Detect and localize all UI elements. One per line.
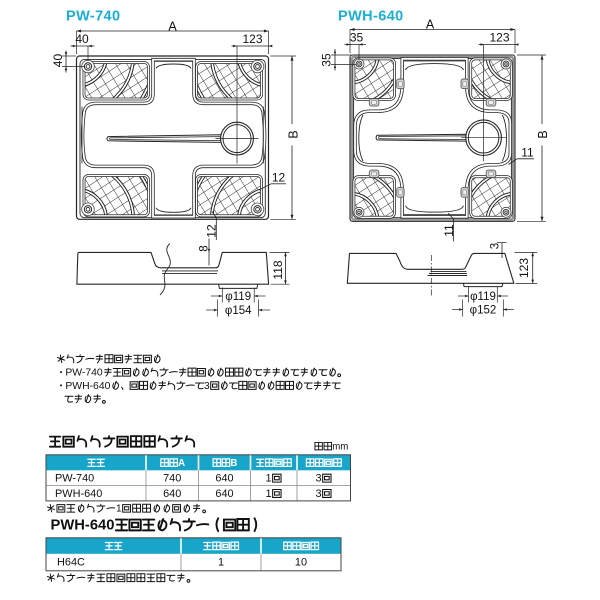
svg-text:B: B xyxy=(536,130,550,138)
svg-text:φ154: φ154 xyxy=(225,305,252,317)
svg-text:PW-740: PW-740 xyxy=(66,8,121,24)
svg-text:φ152: φ152 xyxy=(470,305,497,317)
svg-text:3: 3 xyxy=(489,243,501,249)
svg-text:1: 1 xyxy=(266,473,272,485)
svg-text:PWH-640: PWH-640 xyxy=(51,518,115,534)
svg-text:PWH-640: PWH-640 xyxy=(65,381,110,392)
svg-text:123: 123 xyxy=(517,258,531,278)
svg-text:A: A xyxy=(178,458,185,469)
svg-text:740: 740 xyxy=(163,473,181,485)
svg-text:1: 1 xyxy=(218,556,224,568)
svg-text:35: 35 xyxy=(350,31,364,45)
svg-text:mm: mm xyxy=(332,441,348,452)
svg-text:40: 40 xyxy=(75,32,89,46)
svg-text:3: 3 xyxy=(316,473,322,485)
svg-text:3: 3 xyxy=(204,381,210,392)
svg-text:123: 123 xyxy=(242,32,262,46)
svg-text:B: B xyxy=(230,458,237,469)
svg-text:φ119: φ119 xyxy=(470,291,496,303)
svg-text:640: 640 xyxy=(215,473,233,485)
svg-text:1: 1 xyxy=(266,488,272,500)
svg-text:640: 640 xyxy=(215,488,233,500)
svg-text:11: 11 xyxy=(521,146,534,160)
svg-text:1: 1 xyxy=(116,504,122,515)
svg-text:PWH-640: PWH-640 xyxy=(55,488,102,500)
svg-text:12: 12 xyxy=(272,171,286,185)
svg-text:40: 40 xyxy=(51,54,65,68)
svg-text:3: 3 xyxy=(316,488,322,500)
svg-text:PW-740: PW-740 xyxy=(55,473,94,485)
svg-text:PW-740: PW-740 xyxy=(65,368,103,379)
svg-text:118: 118 xyxy=(271,260,285,279)
svg-text:B: B xyxy=(286,130,300,138)
svg-text:10: 10 xyxy=(295,556,307,568)
svg-text:H64C: H64C xyxy=(57,556,85,568)
svg-text:PWH-640: PWH-640 xyxy=(338,8,404,24)
svg-text:123: 123 xyxy=(489,31,509,45)
svg-text:φ119: φ119 xyxy=(225,291,251,303)
svg-text:640: 640 xyxy=(163,488,181,500)
